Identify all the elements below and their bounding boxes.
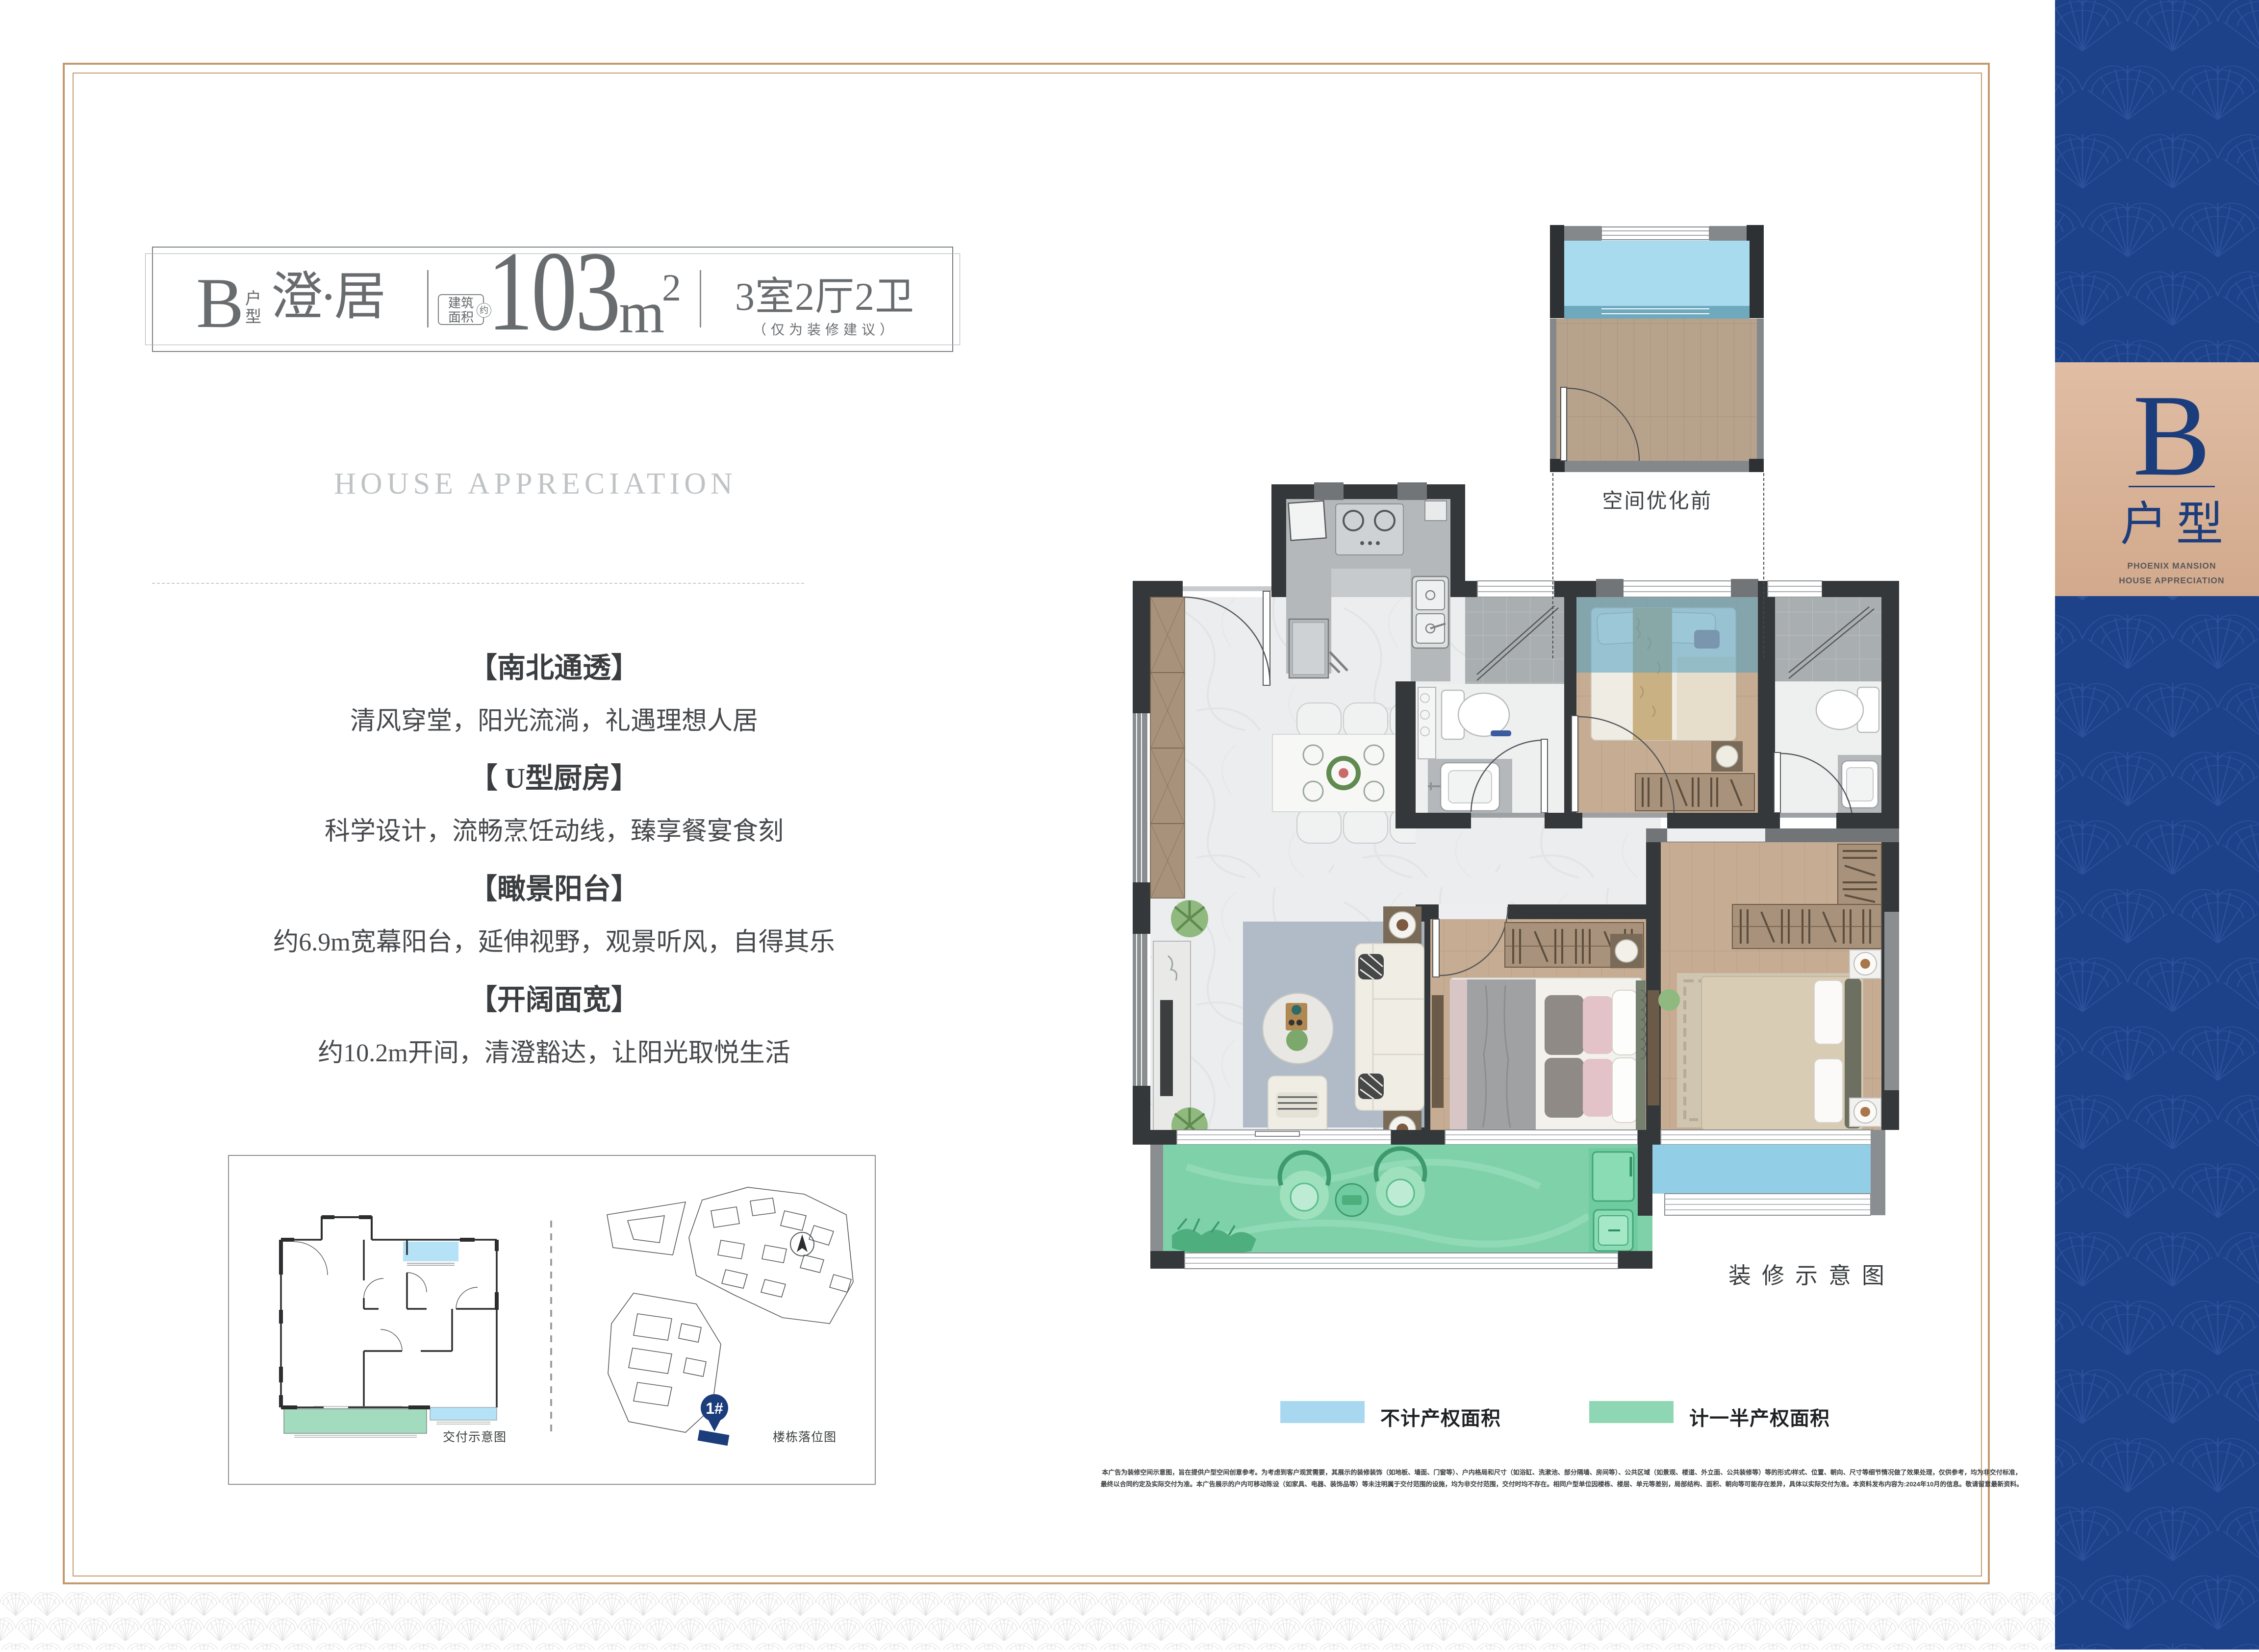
svg-text:1#: 1# bbox=[706, 1400, 723, 1417]
